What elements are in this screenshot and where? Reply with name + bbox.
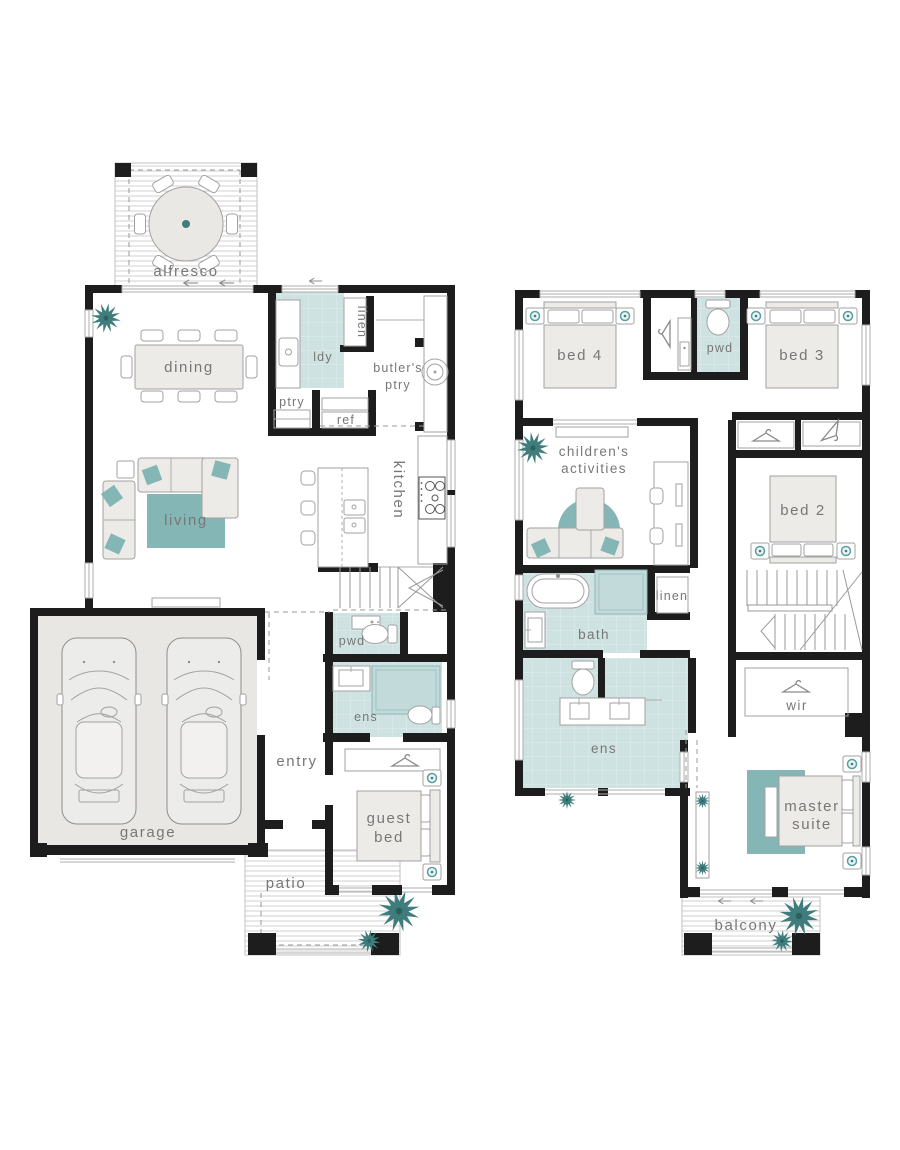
pillow [772,544,801,556]
room-label-childrens-2: activities [561,461,627,476]
toilet [572,661,594,695]
tv-cabinet [556,427,628,437]
room-label-alfresco: alfresco [153,263,218,280]
linen-first: linen [656,577,688,613]
walk-in-robe: wir [745,668,848,716]
room-label-balcony: balcony [715,917,778,934]
room-label-guest-1: guest [367,810,412,827]
stool [301,531,315,545]
post [684,933,712,955]
toilet [706,300,730,335]
room-label-ref: ref [337,413,355,427]
stool [301,501,315,515]
bedside-table [839,308,857,324]
pillow [842,780,853,810]
bedside-table [616,308,634,324]
hanger-icon [783,681,809,692]
butlers-pantry: butler's ptry [373,296,448,432]
bedside-table [423,864,441,880]
room-label-ens1: ens [591,741,617,756]
room-label-linen: linen [355,306,369,338]
room-label-linen1: linen [656,589,688,603]
room-label-ptry: ptry [279,395,305,409]
toilet [408,706,440,724]
room-label-ldy: ldy [313,350,333,364]
floorplan-page: alfresco patio [0,0,900,1145]
robe [803,422,860,446]
bed-headboard [544,302,616,308]
tv-unit [152,598,220,607]
double-vanity [560,698,645,725]
study-bench [654,462,688,565]
room-label-butlers-ptry-1: butler's [373,361,423,375]
pillow [582,310,613,323]
pillow [770,310,801,323]
room-label-bed2: bed 2 [780,502,826,519]
bed-headboard [430,790,440,862]
side-table [117,461,134,478]
shower [595,570,647,614]
room-label-entry: entry [276,753,317,770]
room-label-ens: ens [354,710,378,724]
living: living [101,458,238,607]
stairs-first [747,570,862,650]
hanger-icon [659,321,670,347]
pillow [548,310,579,323]
room-label-bed4: bed 4 [557,347,603,364]
bed-end-bench [765,787,777,837]
room-label-pwd: pwd [339,634,366,648]
room-label-bed3: bed 3 [779,347,825,364]
desk-chair [650,528,663,544]
shower [372,666,440,714]
bedside-table [747,308,765,324]
fridge-space: ref [322,398,368,428]
dining-furniture: dining [121,330,257,402]
bedside-table [751,543,769,559]
room-label-kitchen: kitchen [390,461,407,520]
bed-headboard [770,557,836,563]
room-label-living: living [164,512,208,529]
bedside-table [423,770,441,786]
bedside-table [843,853,861,869]
first-floor-plan: balcony [515,290,870,956]
linen-closet-ground: linen [344,298,369,346]
childrens-activities: children's activities [515,427,688,565]
room-label-butlers-ptry-2: ptry [385,378,411,392]
bed-headboard [853,776,860,846]
car [162,638,246,824]
patio-area: patio [245,850,425,956]
robe [738,422,794,448]
post [371,933,399,955]
floorplan-drawing: alfresco patio [0,0,900,1145]
entry-boundary-line [265,612,330,680]
post [115,163,131,177]
stool [301,471,315,485]
post [241,163,257,177]
plant-icon [695,794,710,809]
post [792,933,820,955]
pillow [804,544,833,556]
stairs-ground [340,567,443,608]
room-label-garage: garage [120,824,176,841]
plant-icon [695,861,710,876]
pillow [804,310,835,323]
room-label-wir: wir [785,698,807,713]
room-label-master-1: master [784,798,839,815]
bed-headboard [766,302,838,308]
plant-icon [89,301,124,336]
bedside-table [837,543,855,559]
room-label-bath: bath [578,627,610,642]
post [248,933,276,955]
window-slide-arrow-icon [309,278,322,284]
room-label-childrens-1: children's [559,444,630,459]
bedside-table [526,308,544,324]
room-label-dining: dining [164,359,214,376]
alfresco-area: alfresco [115,163,257,292]
cooktop [419,477,445,519]
bedside-table [843,756,861,772]
desk-chair [650,488,663,504]
ground-floor-plan: alfresco patio [30,163,455,956]
guest-robe [345,749,440,771]
hanger-icon [392,755,418,766]
car [57,638,141,824]
sofa-seat [576,488,604,530]
pantry: ptry [274,395,310,428]
pillow [842,813,853,843]
toilet [362,625,397,644]
bedroom2: bed 2 [751,476,855,563]
room-label-guest-2: bed [374,829,404,846]
master-suite: master suite [695,756,861,878]
room-label-patio: patio [266,875,307,892]
room-label-master-2: suite [792,816,832,833]
room-label-pwd1: pwd [707,341,734,355]
laundry-bench [276,300,300,388]
kitchen: kitchen [301,436,447,567]
